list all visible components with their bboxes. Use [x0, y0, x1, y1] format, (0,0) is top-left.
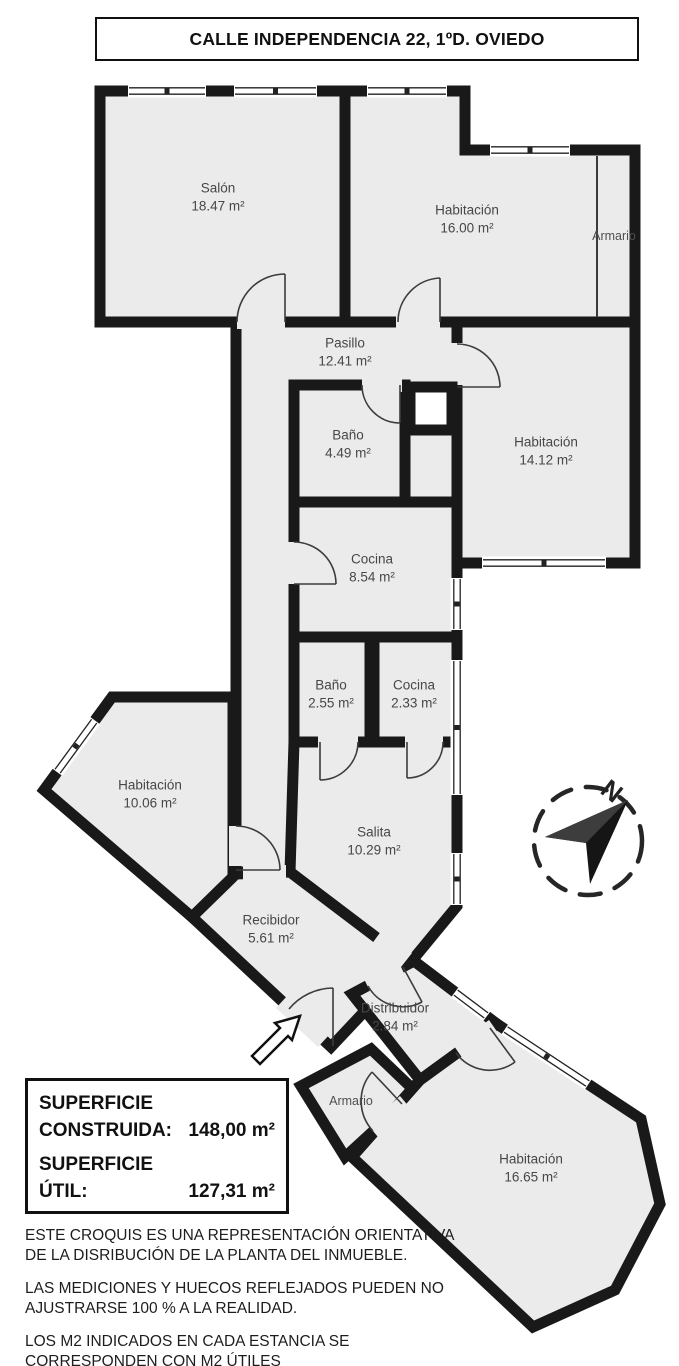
room-label-habitacion-1006: Habitación 10.06 m²: [118, 776, 182, 811]
entrance-arrow-icon: [252, 1016, 300, 1064]
usable-surface-value: 127,31 m²: [188, 1178, 275, 1205]
summary-row-4: ÚTIL: 127,31 m²: [39, 1178, 275, 1205]
disclaimer-text: ESTE CROQUIS ES UNA REPRESENTACIÓN ORIEN…: [25, 1226, 477, 1366]
summary-row-1: SUPERFICIE: [39, 1090, 275, 1117]
room-label-distribuidor: Distribuidor 2.84 m²: [361, 999, 429, 1034]
room-label-habitacion-16: Habitación 16.00 m²: [435, 201, 499, 236]
room-label-cocina-854: Cocina 8.54 m²: [349, 550, 395, 585]
disclaimer-3: LOS M2 INDICADOS EN CADA ESTANCIA SE COR…: [25, 1332, 477, 1366]
floor-plan-page: N CALLE INDEPENDENCIA 22, 1ºD. OVIEDO Sa…: [0, 0, 679, 1366]
surface-summary-box: SUPERFICIE CONSTRUIDA: 148,00 m² SUPERFI…: [25, 1078, 289, 1214]
built-surface-label: CONSTRUIDA:: [39, 1117, 172, 1144]
summary-row-3: SUPERFICIE: [39, 1151, 275, 1178]
compass-icon: N: [534, 773, 642, 895]
page-title: CALLE INDEPENDENCIA 22, 1ºD. OVIEDO: [95, 17, 639, 61]
patio-shaft: [410, 387, 452, 430]
room-label-bano-255: Baño 2.55 m²: [308, 676, 354, 711]
page-title-text: CALLE INDEPENDENCIA 22, 1ºD. OVIEDO: [189, 29, 544, 50]
room-label-recibidor: Recibidor 5.61 m²: [242, 911, 299, 946]
room-label-pasillo: Pasillo 12.41 m²: [318, 334, 371, 369]
disclaimer-2: LAS MEDICIONES Y HUECOS REFLEJADOS PUEDE…: [25, 1279, 477, 1320]
room-label-salita: Salita 10.29 m²: [347, 823, 400, 858]
room-label-habitacion-1665: Habitación 16.65 m²: [499, 1150, 563, 1185]
room-label-habitacion-1412: Habitación 14.12 m²: [514, 433, 578, 468]
usable-surface-label: ÚTIL:: [39, 1178, 88, 1205]
room-label-salon: Salón 18.47 m²: [191, 179, 244, 214]
room-label-bano-449: Baño 4.49 m²: [325, 426, 371, 461]
room-label-armario-top: Armario: [592, 228, 636, 244]
summary-row-2: CONSTRUIDA: 148,00 m²: [39, 1117, 275, 1144]
room-label-cocina-233: Cocina 2.33 m²: [391, 676, 437, 711]
disclaimer-1: ESTE CROQUIS ES UNA REPRESENTACIÓN ORIEN…: [25, 1226, 477, 1267]
room-label-armario-bottom: Armario: [329, 1093, 373, 1109]
built-surface-value: 148,00 m²: [188, 1117, 275, 1144]
